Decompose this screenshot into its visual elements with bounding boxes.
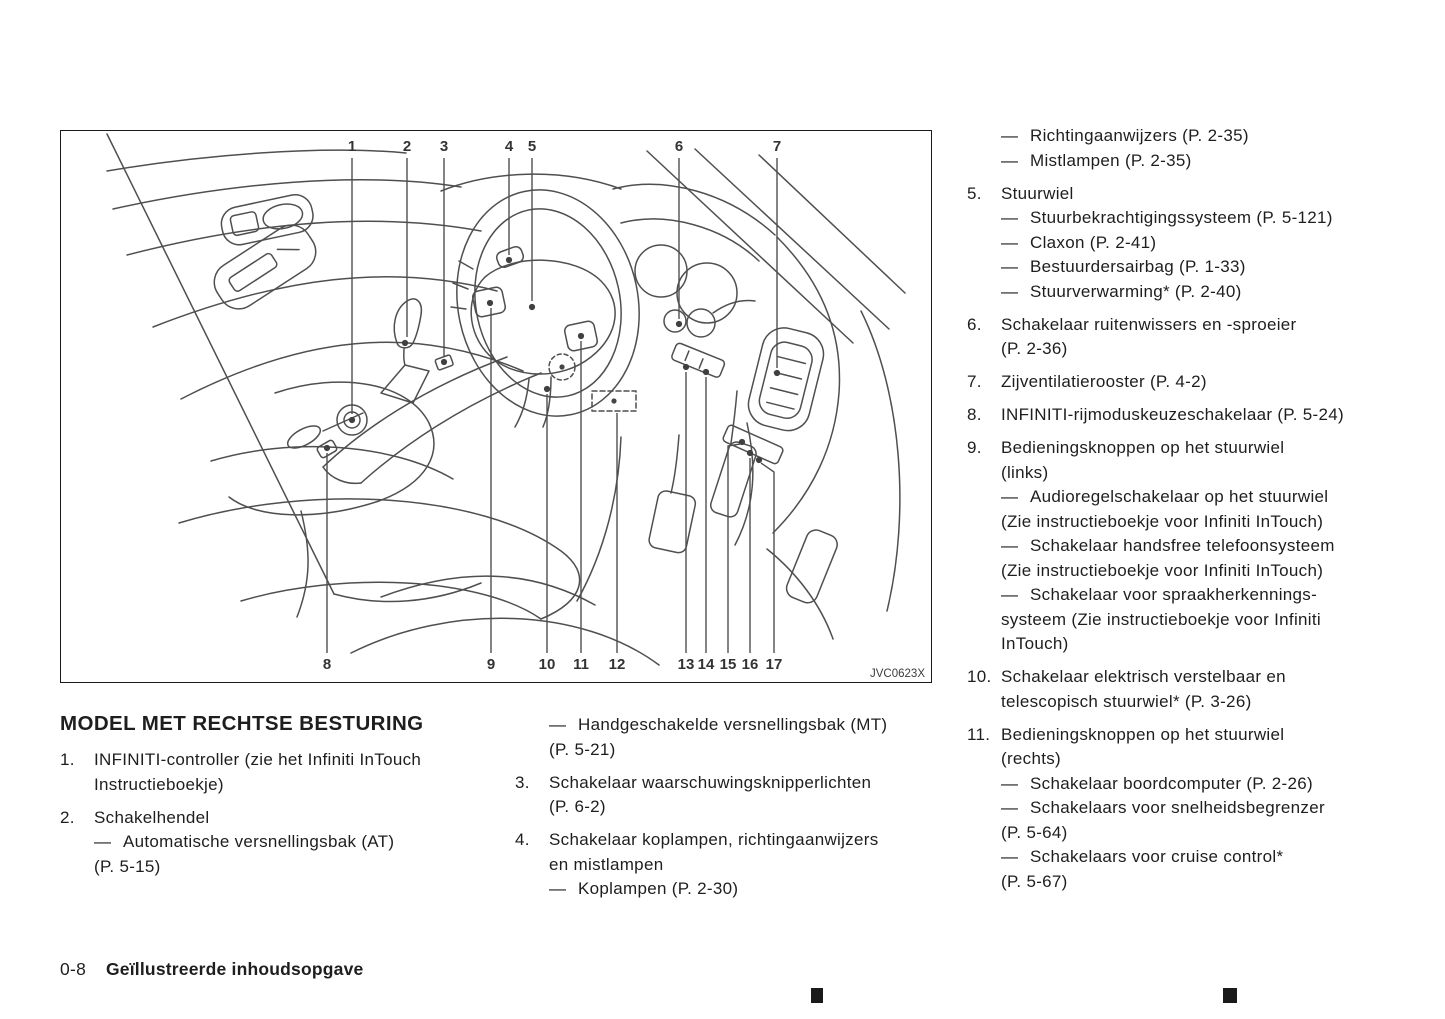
callout-number: 13 <box>678 656 695 673</box>
item-text: Koplampen (P. 2-30) <box>578 877 738 902</box>
callout-target-dot <box>747 450 753 456</box>
callout-number: 17 <box>766 656 783 673</box>
item-text: Handgeschakelde versnellingsbak (MT) <box>578 713 887 738</box>
item-text: (P. 2-36) <box>1001 337 1068 362</box>
item-text: (P. 6-2) <box>549 795 606 820</box>
item-text: Automatische versnellingsbak (AT) <box>123 830 394 855</box>
item-text: Schakelaars voor snelheidsbegrenzer <box>1030 796 1325 821</box>
manual-page: 1234567891011121314151617 JVC0623X MODEL… <box>0 0 1445 1019</box>
dashboard-line-art: 1234567891011121314151617 JVC0623X <box>61 131 930 681</box>
item-text: (P. 5-15) <box>94 855 161 880</box>
callout-target-dot <box>349 417 355 423</box>
callout-number: 4 <box>505 138 514 155</box>
item-text: (Zie instructieboekje voor Infiniti InTo… <box>1001 559 1323 584</box>
dash-bullet: — <box>1001 772 1018 797</box>
callout-number: 10 <box>539 656 556 673</box>
item-text: en mistlampen <box>549 853 663 878</box>
callout-number: 9 <box>487 656 495 673</box>
item-text: (rechts) <box>1001 747 1061 772</box>
print-mark-left <box>811 988 823 1003</box>
item-text: Schakelaar elektrisch verstelbaar en <box>1001 665 1286 690</box>
item-text: Stuurverwarming* (P. 2-40) <box>1030 280 1242 305</box>
callout-number: 6 <box>675 138 683 155</box>
item-text: (links) <box>1001 461 1048 486</box>
item-text: INFINITI-rijmoduskeuzeschakelaar (P. 5-2… <box>1001 403 1344 428</box>
dash-bullet: — <box>1001 845 1018 870</box>
item-text: Stuurbekrachtigingssysteem (P. 5-121) <box>1030 206 1333 231</box>
callout-target-dot <box>578 333 584 339</box>
callout-leader-line <box>728 444 740 653</box>
item-text: InTouch) <box>1001 632 1069 657</box>
callout-number: 14 <box>698 656 715 673</box>
item-text: Bestuurdersairbag (P. 1-33) <box>1030 255 1246 280</box>
callout-target-dot <box>739 439 745 445</box>
item-text: Mistlampen (P. 2-35) <box>1030 149 1192 174</box>
callout-number: 16 <box>742 656 759 673</box>
callout-target-dot <box>529 304 535 310</box>
item-number: 1. <box>60 748 75 773</box>
item-number: 5. <box>967 182 982 207</box>
item-number: 2. <box>60 806 75 831</box>
dash-bullet: — <box>1001 796 1018 821</box>
section-heading: MODEL MET RECHTSE BESTURING <box>60 712 424 736</box>
item-text: Schakelaar ruitenwissers en -sproeier <box>1001 313 1297 338</box>
item-number: 11. <box>967 723 990 748</box>
dash-bullet: — <box>1001 124 1018 149</box>
callout-number: 15 <box>720 656 737 673</box>
dashboard-illustration: 1234567891011121314151617 JVC0623X <box>60 130 932 683</box>
callout-target-dot <box>324 445 330 451</box>
dash-bullet: — <box>1001 280 1018 305</box>
item-number: 6. <box>967 313 982 338</box>
callout-target-dot <box>703 369 709 375</box>
callout-target-dot <box>774 370 780 376</box>
dash-bullet: — <box>1001 149 1018 174</box>
item-text: telescopisch stuurwiel* (P. 3-26) <box>1001 690 1252 715</box>
footer-section-title: Geïllustreerde inhoudsopgave <box>106 959 363 980</box>
dash-bullet: — <box>1001 255 1018 280</box>
callout-number: 7 <box>773 138 781 155</box>
item-text: Instructieboekje) <box>94 773 224 798</box>
item-text: Schakelaar koplampen, richtingaanwijzers <box>549 828 879 853</box>
line-art-static <box>107 134 905 665</box>
callout-target-dot <box>506 257 512 263</box>
item-text: Schakelaars voor cruise control* <box>1030 845 1283 870</box>
item-text: Stuurwiel <box>1001 182 1074 207</box>
callout-number: 12 <box>609 656 626 673</box>
callout-target-dot <box>402 340 408 346</box>
callout-number: 1 <box>348 138 356 155</box>
item-text: Claxon (P. 2-41) <box>1030 231 1156 256</box>
dash-bullet: — <box>94 830 111 855</box>
dash-bullet: — <box>1001 534 1018 559</box>
dash-bullet: — <box>1001 485 1018 510</box>
item-number: 3. <box>515 771 530 796</box>
dash-bullet: — <box>1001 583 1018 608</box>
dash-bullet: — <box>1001 206 1018 231</box>
item-text: (P. 5-21) <box>549 738 616 763</box>
print-mark-right <box>1223 988 1237 1003</box>
callout-target-dot <box>676 321 682 327</box>
item-number: 7. <box>967 370 982 395</box>
item-text: Zijventilatierooster (P. 4-2) <box>1001 370 1207 395</box>
dash-bullet: — <box>1001 231 1018 256</box>
callout-target-dot <box>756 457 762 463</box>
item-number: 9. <box>967 436 982 461</box>
item-text: (P. 5-64) <box>1001 821 1068 846</box>
dash-bullet: — <box>549 713 566 738</box>
callout-target-dot <box>544 386 550 392</box>
item-text: Bedieningsknoppen op het stuurwiel <box>1001 436 1284 461</box>
item-text: Schakelhendel <box>94 806 209 831</box>
callout-target-dot <box>683 364 689 370</box>
item-text: Schakelaar waarschuwingsknipperlichten <box>549 771 871 796</box>
item-text: Richtingaanwijzers (P. 2-35) <box>1030 124 1249 149</box>
dash-bullet: — <box>549 877 566 902</box>
item-number: 8. <box>967 403 982 428</box>
item-text: Schakelaar boordcomputer (P. 2-26) <box>1030 772 1313 797</box>
item-number: 10. <box>967 665 992 690</box>
item-text: (Zie instructieboekje voor Infiniti InTo… <box>1001 510 1323 535</box>
callout-number: 3 <box>440 138 448 155</box>
item-text: Audioregelschakelaar op het stuurwiel <box>1030 485 1328 510</box>
item-number: 4. <box>515 828 530 853</box>
item-text: INFINITI-controller (zie het Infiniti In… <box>94 748 421 773</box>
callout-target-dot <box>487 300 493 306</box>
callout-number: 11 <box>573 656 589 673</box>
callout-number: 2 <box>403 138 411 155</box>
figure-code: JVC0623X <box>870 668 925 680</box>
item-text: Schakelaar voor spraakherkennings- <box>1030 583 1317 608</box>
callout-target-dot <box>441 359 447 365</box>
item-text: systeem (Zie instructieboekje voor Infin… <box>1001 608 1321 633</box>
item-text: (P. 5-67) <box>1001 870 1068 895</box>
callout-number: 8 <box>323 656 331 673</box>
item-text: Bedieningsknoppen op het stuurwiel <box>1001 723 1284 748</box>
callout-number: 5 <box>528 138 536 155</box>
footer-page-number: 0-8 <box>60 959 86 980</box>
callout-leader-line <box>761 463 774 653</box>
item-text: Schakelaar handsfree telefoonsysteem <box>1030 534 1335 559</box>
